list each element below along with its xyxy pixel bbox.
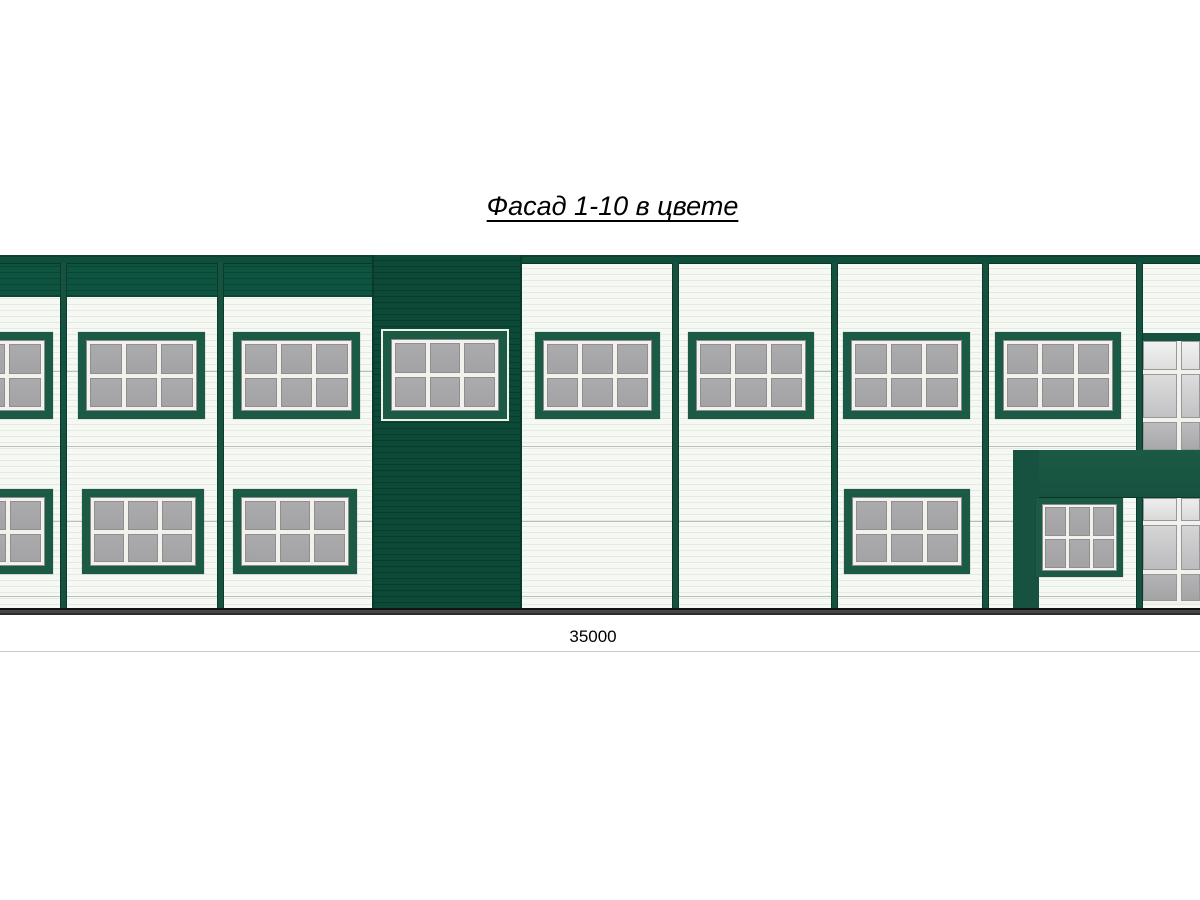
curtain-wall-pane [1181,341,1200,370]
curtain-wall-pane [1143,525,1177,570]
window-pane [926,378,958,408]
window-glazing-grid [94,501,192,562]
window-glazing-grid [395,343,495,407]
window-pane [582,378,613,408]
upper-window [383,331,507,419]
window-pane [0,501,6,530]
window-pane [700,344,731,374]
window-glazing-grid [245,344,348,407]
window-pane [162,501,192,530]
window-sash [86,340,197,411]
window-pane [0,344,5,374]
window-pane [891,344,923,374]
window-pane [245,344,277,374]
window-pane [1007,344,1038,374]
window-pane [161,378,193,408]
curtain-wall-pane [1181,422,1200,450]
lower-window [0,489,53,574]
window-pane [617,344,648,374]
dark-accent-bay [372,255,522,608]
window-pane [395,377,426,407]
window-pane [464,343,495,373]
window-sash [391,339,499,411]
pilaster [1136,263,1143,608]
upper-window [995,332,1121,419]
window-pane [94,534,124,563]
pilaster [60,263,67,608]
window-pane [1069,539,1090,568]
dimension-label: 35000 [0,627,1186,647]
window-pane [1007,378,1038,408]
window-pane [128,501,158,530]
window-sash [1042,504,1117,571]
upper-window [688,332,814,419]
window-pane [1093,507,1114,536]
window-sash [0,497,45,566]
curtain-wall-pane [1143,498,1177,521]
upper-window [535,332,660,419]
window-pane [927,501,958,530]
window-pane [245,501,276,530]
window-sash [543,340,652,411]
window-pane [280,501,311,530]
window-sash [241,340,352,411]
pilaster [982,263,989,608]
window-pane [10,501,41,530]
window-pane [855,344,887,374]
curtain-wall-lower [1143,498,1200,604]
window-pane [245,534,276,563]
window-pane [1078,344,1109,374]
window-pane [926,344,958,374]
window-pane [9,344,41,374]
ground-line [0,608,1200,615]
curtain-wall-upper [1143,341,1200,450]
upper-window [233,332,360,419]
upper-window [78,332,205,419]
window-sash [696,340,806,411]
window-pane [314,534,345,563]
window-pane [1069,507,1090,536]
roof-coping [0,255,1200,264]
window-pane [395,343,426,373]
entrance-window [1036,498,1123,577]
window-pane [1093,539,1114,568]
window-pane [162,534,192,563]
window-pane [90,378,122,408]
window-pane [128,534,158,563]
window-pane [856,501,887,530]
window-pane [1078,378,1109,408]
window-pane [582,344,613,374]
window-pane [0,378,5,408]
window-pane [430,343,461,373]
window-glazing-grid [90,344,193,407]
lower-window [82,489,204,574]
facade-drawing [0,0,1200,900]
window-pane [281,378,313,408]
window-pane [280,534,311,563]
window-pane [547,344,578,374]
window-sash [241,497,349,566]
window-pane [891,501,922,530]
window-pane [617,378,648,408]
pilaster [831,263,838,608]
window-glazing-grid [855,344,958,407]
curtain-wall-pane [1181,498,1200,521]
window-pane [464,377,495,407]
window-glazing-grid [856,501,958,562]
window-pane [0,534,6,563]
window-sash [90,497,196,566]
upper-window [0,332,53,419]
window-pane [316,344,348,374]
window-pane [126,344,158,374]
curtain-wall-pane [1181,525,1200,570]
curtain-wall-header [1143,333,1200,341]
window-pane [891,378,923,408]
window-pane [1045,507,1066,536]
window-pane [735,378,766,408]
window-pane [161,344,193,374]
drawing-canvas: Фасад 1-10 в цвете 35000 [0,0,1200,900]
window-pane [1045,539,1066,568]
window-pane [281,344,313,374]
curtain-wall-pane [1181,374,1200,418]
window-pane [700,378,731,408]
window-pane [10,534,41,563]
window-pane [314,501,345,530]
window-pane [547,378,578,408]
window-pane [1042,344,1073,374]
curtain-wall-pane [1181,574,1200,601]
window-pane [891,534,922,563]
lower-window [844,489,970,574]
window-pane [735,344,766,374]
window-pane [9,378,41,408]
window-glazing-grid [1045,507,1114,568]
curtain-wall-pane [1143,374,1177,418]
window-pane [771,344,802,374]
dimension-line [0,651,1200,652]
window-sash [851,340,962,411]
window-glazing-grid [245,501,345,562]
window-pane [245,378,277,408]
window-pane [771,378,802,408]
window-pane [316,378,348,408]
curtain-wall-pane [1143,574,1177,601]
entrance-beam [1013,450,1200,498]
window-glazing-grid [0,501,41,562]
window-pane [855,378,887,408]
window-pane [126,378,158,408]
window-glazing-grid [700,344,802,407]
window-sash [1003,340,1113,411]
window-pane [94,501,124,530]
window-pane [927,534,958,563]
window-glazing-grid [547,344,648,407]
curtain-wall-pane [1143,422,1177,450]
window-sash [0,340,45,411]
window-sash [852,497,962,566]
lower-window [233,489,357,574]
window-pane [1042,378,1073,408]
curtain-wall-pane [1143,341,1177,370]
upper-window [843,332,970,419]
window-glazing-grid [0,344,41,407]
window-pane [90,344,122,374]
pilaster [217,263,224,608]
window-pane [430,377,461,407]
window-glazing-grid [1007,344,1109,407]
window-pane [856,534,887,563]
pilaster [672,263,679,608]
